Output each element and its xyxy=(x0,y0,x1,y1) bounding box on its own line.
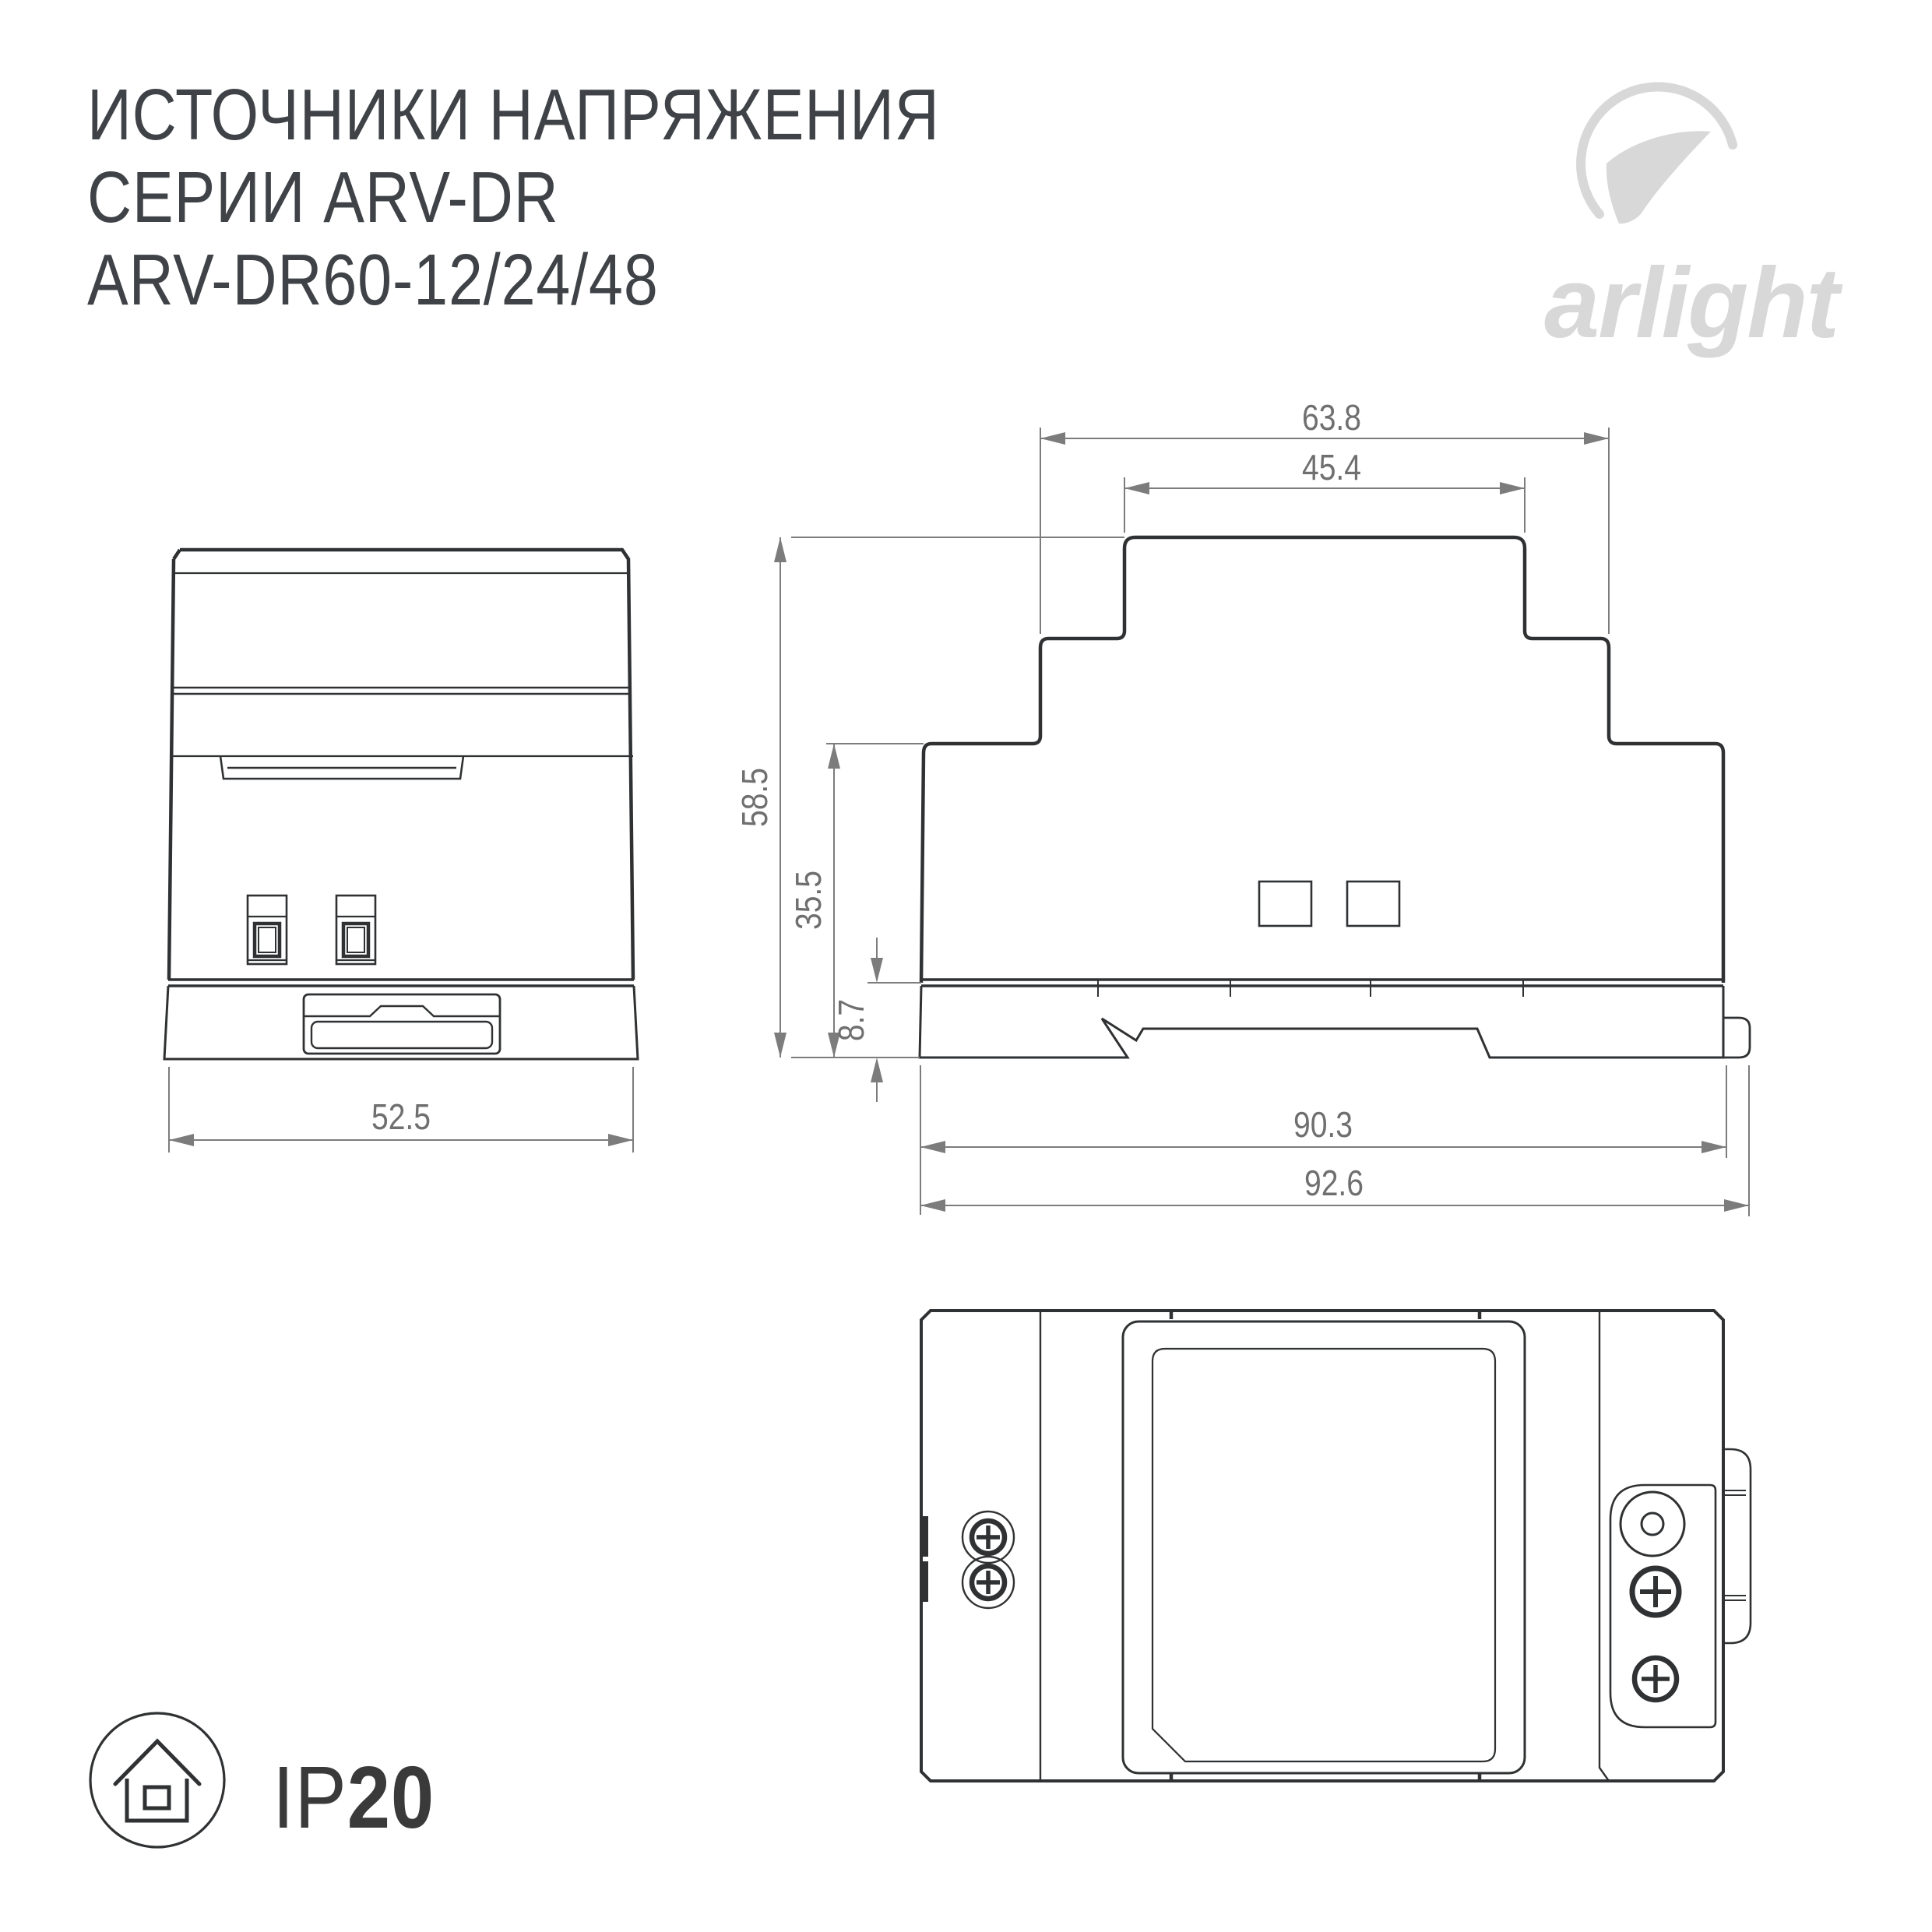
ip-icon-circle xyxy=(90,1713,224,1847)
dim-total-length: 92.6 xyxy=(1304,1163,1364,1204)
side-profile xyxy=(921,537,1723,983)
side-vent-slot-left xyxy=(1259,882,1311,926)
front-terminal-right xyxy=(336,896,375,964)
side-vent-slot-right xyxy=(1347,882,1399,926)
ip-rating-label: IP20 xyxy=(273,1747,435,1848)
bottom-left-slot-2 xyxy=(922,1561,928,1602)
bottom-outline xyxy=(921,1311,1723,1781)
bottom-output-panel xyxy=(1610,1485,1716,1727)
side-inner-width-dimension: 45.4 xyxy=(1124,448,1525,533)
bottom-window-outer xyxy=(1123,1321,1525,1773)
ip-value: 20 xyxy=(347,1748,435,1846)
ip-icon-walls xyxy=(127,1779,187,1821)
front-din-clip xyxy=(304,994,500,1054)
catalog-drawing-page: ИСТОЧНИКИ НАПРЯЖЕНИЯ СЕРИИ ARV-DR ARV-DR… xyxy=(0,0,1932,1932)
bottom-left-slot-1 xyxy=(922,1516,928,1557)
bottom-din-latch xyxy=(1723,1449,1751,1643)
dim-height-total: 58.5 xyxy=(735,768,776,827)
side-rail-height-dimension: 8.7 xyxy=(832,938,921,1102)
bottom-window-inner xyxy=(1153,1349,1495,1761)
dim-front-width: 52.5 xyxy=(371,1097,431,1138)
ip20-house-icon xyxy=(90,1713,224,1847)
bottom-edge-ticks xyxy=(1171,1311,1480,1781)
ip-icon-window xyxy=(145,1787,169,1808)
side-din-rail-profile xyxy=(920,986,1723,1057)
front-width-dimension: 52.5 xyxy=(169,1067,633,1153)
side-base-seam xyxy=(921,980,1723,986)
technical-drawing: 52.5 63.8 45.4 xyxy=(0,0,1932,1932)
dim-height-mid: 35.5 xyxy=(789,871,829,930)
front-view: 52.5 xyxy=(164,550,638,1153)
front-base-seam xyxy=(168,980,634,986)
bottom-view xyxy=(921,1311,1751,1781)
ip-prefix: IP xyxy=(273,1748,347,1846)
side-din-latch xyxy=(1723,1018,1750,1057)
front-outline xyxy=(169,550,633,980)
dim-rail-height: 8.7 xyxy=(832,999,872,1041)
bottom-input-screws xyxy=(962,1511,1014,1608)
front-label-tray xyxy=(220,756,463,779)
side-view: 63.8 45.4 58.5 35.5 xyxy=(735,398,1750,1216)
ip-icon-roof xyxy=(115,1741,199,1784)
side-seam-ticks xyxy=(1098,980,1523,997)
dim-side-top-width: 63.8 xyxy=(1302,398,1361,438)
bottom-adjust-pot xyxy=(1621,1492,1684,1556)
dim-side-inner-width: 45.4 xyxy=(1302,448,1361,488)
front-terminal-left xyxy=(248,896,287,964)
dim-body-length: 90.3 xyxy=(1293,1105,1353,1145)
front-seam-upper xyxy=(171,688,632,694)
